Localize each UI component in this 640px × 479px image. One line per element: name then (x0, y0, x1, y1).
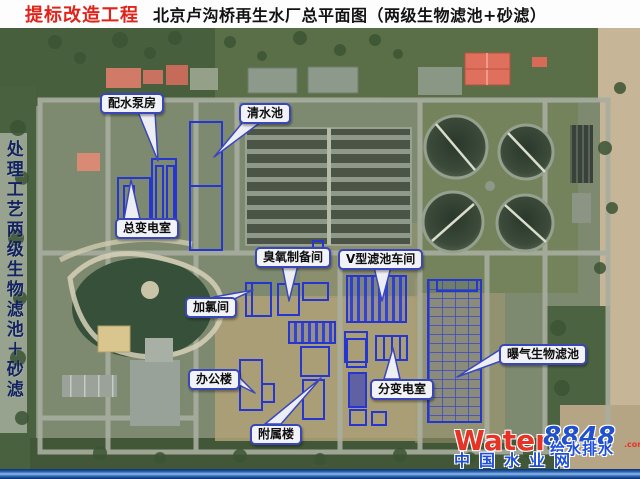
watermark: Water 8848 .com 给水排水 中国水业网 (446, 427, 640, 469)
watermark-site-name: 中国水业网 (454, 453, 579, 469)
callout-main-transformer-room: 总变电室 (115, 218, 179, 239)
callout-sub-transformer-room: 分变电室 (370, 379, 434, 400)
callout-aerated-biological-filter: 曝气生物滤池 (499, 344, 587, 365)
callout-water-distribution-pump-house: 配水泵房 (100, 93, 164, 114)
callout-clear-water-tank: 清水池 (239, 103, 291, 124)
red-roof-building (106, 68, 141, 88)
aerated-biofilter-outline (428, 280, 481, 422)
aeration-basins (246, 128, 411, 245)
site-plan-map: 处理工艺两级生物滤池＋砂滤 配水泵房 清水池 总变电室 臭氧制备间 V型滤池车间… (0, 28, 640, 469)
slide-page: 提标改造工程 北京卢沟桥再生水厂总平面图（两级生物滤池+砂滤） (0, 0, 640, 479)
callout-auxiliary-building: 附属楼 (250, 424, 302, 445)
callout-v-type-filter-workshop: V型滤池车间 (338, 249, 423, 270)
yellow-building (98, 326, 130, 352)
callout-ozone-preparation-room: 臭氧制备间 (255, 247, 331, 268)
bottom-border (0, 469, 640, 479)
header: 提标改造工程 北京卢沟桥再生水厂总平面图（两级生物滤池+砂滤） (0, 0, 640, 28)
callout-office-building: 办公楼 (188, 369, 240, 390)
center-structure (485, 181, 495, 191)
callout-chlorination-room: 加氯间 (185, 297, 237, 318)
project-tag: 提标改造工程 (25, 1, 139, 27)
page-title: 北京卢沟桥再生水厂总平面图（两级生物滤池+砂滤） (153, 2, 546, 26)
process-sidebar-label: 处理工艺两级生物滤池＋砂滤 (3, 140, 22, 400)
watermark-brand-suffix: .com (624, 440, 640, 449)
parking-lot (62, 375, 117, 397)
v-type-filter-outline (347, 276, 406, 322)
